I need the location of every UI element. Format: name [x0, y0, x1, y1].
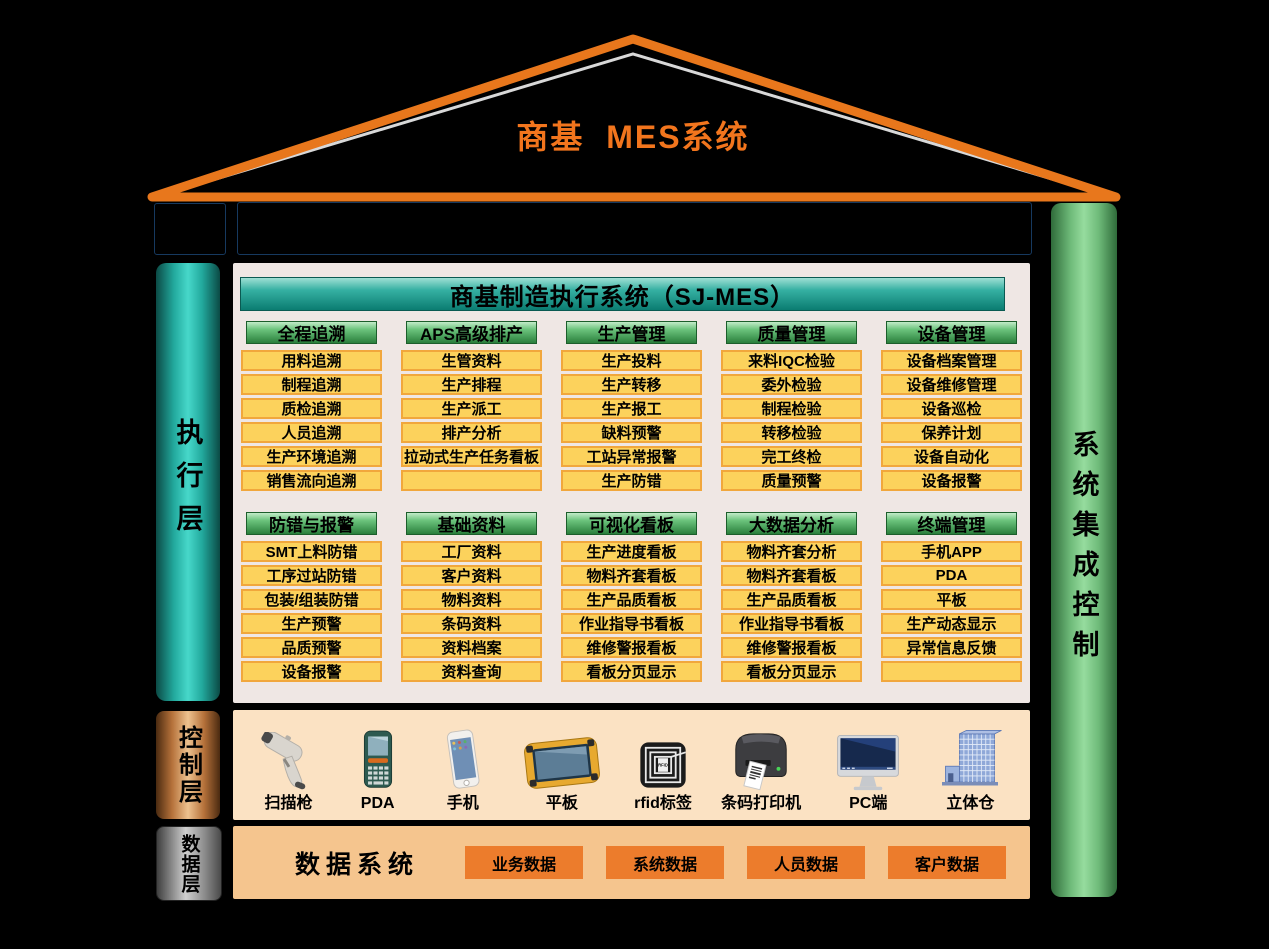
module-item: SMT上料防错 [241, 541, 382, 562]
module-item: 来料IQC检验 [721, 350, 862, 371]
module-item: 资料查询 [401, 661, 542, 682]
module-item: 生产品质看板 [721, 589, 862, 610]
dataset-business: 业务数据 [465, 846, 583, 879]
module-group-header: 设备管理 [886, 321, 1017, 344]
control-panel: 扫描枪 PDA [233, 710, 1030, 820]
module-item: 生产进度看板 [561, 541, 702, 562]
module-item: 工厂资料 [401, 541, 542, 562]
device-phone: 手机 [436, 716, 490, 820]
phone-icon [436, 728, 490, 794]
module-group-equipment: 设备管理 设备档案管理 设备维修管理 设备巡检 保养计划 设备自动化 设备报警 [881, 321, 1022, 494]
module-item: 物料齐套分析 [721, 541, 862, 562]
module-item: 排产分析 [401, 422, 542, 443]
mes-architecture-diagram: 商基 MES系统 计划层 鼎捷，金蝶，用友，SAP等ERP/其他企业系统 执行层… [0, 0, 1269, 949]
module-item: 物料资料 [401, 589, 542, 610]
module-group-quality: 质量管理 来料IQC检验 委外检验 制程检验 转移检验 完工终检 质量预警 [721, 321, 862, 494]
scanner-gun-icon [258, 732, 320, 794]
data-system-title: 数据系统 [295, 845, 419, 881]
layer-label-execution: 执行层 [156, 263, 220, 701]
module-item: 生产投料 [561, 350, 702, 371]
device-scanner: 扫描枪 [258, 716, 320, 820]
device-label: 平板 [546, 794, 578, 814]
module-group-header: 质量管理 [726, 321, 857, 344]
module-item: 客户资料 [401, 565, 542, 586]
erp-systems-bar: 鼎捷，金蝶，用友，SAP等ERP/其他企业系统 [237, 202, 1032, 255]
layer-label-planning: 计划层 [154, 203, 226, 255]
module-item: 缺料预警 [561, 422, 702, 443]
module-item: 设备巡检 [881, 398, 1022, 419]
module-group-header: 生产管理 [566, 321, 697, 344]
pda-icon [349, 728, 407, 794]
module-item [401, 470, 542, 491]
layer-label-control: 控制层 [156, 711, 220, 819]
module-item: 维修警报看板 [721, 637, 862, 658]
module-item: 看板分页显示 [721, 661, 862, 682]
module-item: 制程追溯 [241, 374, 382, 395]
module-item: 平板 [881, 589, 1022, 610]
module-item: 手机APP [881, 541, 1022, 562]
module-group-aps: APS高级排产 生管资料 生产排程 生产派工 排产分析 拉动式生产任务看板 [401, 321, 542, 494]
module-item: PDA [881, 565, 1022, 586]
module-item: 人员追溯 [241, 422, 382, 443]
module-group-header: 防错与报警 [246, 512, 377, 535]
device-tablet: 平板 [519, 716, 605, 820]
device-label: rfid标签 [634, 794, 692, 814]
module-item: 生产环境追溯 [241, 446, 382, 467]
module-item: 条码资料 [401, 613, 542, 634]
layer-label-data-text: 数据层 [176, 834, 203, 894]
module-item: 生产动态显示 [881, 613, 1022, 634]
sjmes-header: 商基制造执行系统（SJ-MES） [240, 277, 1005, 311]
module-item: 拉动式生产任务看板 [401, 446, 542, 467]
system-integration-text: 系统集成控制 [1065, 430, 1104, 670]
warehouse-icon [935, 728, 1005, 794]
module-group-header: 基础资料 [406, 512, 537, 535]
module-item: 设备报警 [881, 470, 1022, 491]
module-group-terminal: 终端管理 手机APP PDA 平板 生产动态显示 异常信息反馈 [881, 512, 1022, 685]
rfid-tag-icon: RFID [634, 736, 692, 794]
system-integration-bar: 系统集成控制 [1051, 203, 1117, 897]
data-panel: 数据系统 业务数据 系统数据 人员数据 客户数据 [233, 826, 1030, 899]
dataset-customer: 客户数据 [888, 846, 1006, 879]
module-item: 生产排程 [401, 374, 542, 395]
device-warehouse: 立体仓 [935, 716, 1005, 820]
module-group-header: 终端管理 [886, 512, 1017, 535]
module-group-header: APS高级排产 [406, 321, 537, 344]
module-group-header: 大数据分析 [726, 512, 857, 535]
module-group-header: 可视化看板 [566, 512, 697, 535]
module-item: 异常信息反馈 [881, 637, 1022, 658]
module-row-2: 防错与报警 SMT上料防错 工序过站防错 包装/组装防错 生产预警 品质预警 设… [241, 512, 1022, 685]
module-item: 质量预警 [721, 470, 862, 491]
module-item: 工站异常报警 [561, 446, 702, 467]
module-group-header: 全程追溯 [246, 321, 377, 344]
diagram-title: 商基 MES系统 [380, 112, 886, 158]
module-group-master-data: 基础资料 工厂资料 客户资料 物料资料 条码资料 资料档案 资料查询 [401, 512, 542, 685]
module-item: 质检追溯 [241, 398, 382, 419]
module-item: 物料齐套看板 [561, 565, 702, 586]
module-item: 品质预警 [241, 637, 382, 658]
module-item: 生产品质看板 [561, 589, 702, 610]
dataset-system: 系统数据 [606, 846, 724, 879]
module-item: 资料档案 [401, 637, 542, 658]
module-item: 保养计划 [881, 422, 1022, 443]
module-item: 完工终检 [721, 446, 862, 467]
module-item: 生产预警 [241, 613, 382, 634]
pc-monitor-icon [830, 732, 906, 794]
device-rfid: RFID rfid标签 [634, 716, 692, 820]
layer-label-data: 数据层 [156, 826, 222, 901]
device-pc: PC端 [830, 716, 906, 820]
module-item: 设备档案管理 [881, 350, 1022, 371]
module-item: 作业指导书看板 [721, 613, 862, 634]
module-item [881, 661, 1022, 682]
device-pda: PDA [349, 716, 407, 820]
module-item: 包装/组装防错 [241, 589, 382, 610]
layer-label-execution-text: 执行层 [169, 418, 208, 547]
device-label: PDA [361, 794, 395, 814]
dataset-personnel: 人员数据 [747, 846, 865, 879]
module-item: 设备维修管理 [881, 374, 1022, 395]
module-item: 生产报工 [561, 398, 702, 419]
module-group-dashboard: 可视化看板 生产进度看板 物料齐套看板 生产品质看板 作业指导书看板 维修警报看… [561, 512, 702, 685]
layer-label-control-text: 控制层 [171, 725, 206, 806]
execution-panel: 商基制造执行系统（SJ-MES） 全程追溯 用料追溯 制程追溯 质检追溯 人员追… [233, 263, 1030, 703]
module-item: 设备自动化 [881, 446, 1022, 467]
barcode-printer-icon [722, 728, 800, 794]
module-item: 用料追溯 [241, 350, 382, 371]
svg-text:RFID: RFID [658, 762, 668, 767]
module-group-error-proofing: 防错与报警 SMT上料防错 工序过站防错 包装/组装防错 生产预警 品质预警 设… [241, 512, 382, 685]
module-item: 设备报警 [241, 661, 382, 682]
module-item: 作业指导书看板 [561, 613, 702, 634]
device-barcode-printer: 条码打印机 [721, 716, 801, 820]
device-label: 条码打印机 [721, 794, 801, 814]
module-item: 生产派工 [401, 398, 542, 419]
device-label: 立体仓 [946, 794, 994, 814]
module-group-traceability: 全程追溯 用料追溯 制程追溯 质检追溯 人员追溯 生产环境追溯 销售流向追溯 [241, 321, 382, 494]
module-item: 看板分页显示 [561, 661, 702, 682]
module-item: 制程检验 [721, 398, 862, 419]
module-row-1: 全程追溯 用料追溯 制程追溯 质检追溯 人员追溯 生产环境追溯 销售流向追溯 A… [241, 321, 1022, 494]
device-label: 扫描枪 [265, 794, 313, 814]
tablet-icon [519, 732, 605, 794]
device-label: 手机 [447, 794, 479, 814]
device-label: PC端 [849, 794, 887, 814]
module-item: 转移检验 [721, 422, 862, 443]
module-item: 生管资料 [401, 350, 542, 371]
module-item: 委外检验 [721, 374, 862, 395]
module-group-bigdata: 大数据分析 物料齐套分析 物料齐套看板 生产品质看板 作业指导书看板 维修警报看… [721, 512, 862, 685]
module-item: 物料齐套看板 [721, 565, 862, 586]
module-group-production: 生产管理 生产投料 生产转移 生产报工 缺料预警 工站异常报警 生产防错 [561, 321, 702, 494]
module-item: 销售流向追溯 [241, 470, 382, 491]
module-item: 生产防错 [561, 470, 702, 491]
module-item: 维修警报看板 [561, 637, 702, 658]
module-item: 工序过站防错 [241, 565, 382, 586]
module-item: 生产转移 [561, 374, 702, 395]
